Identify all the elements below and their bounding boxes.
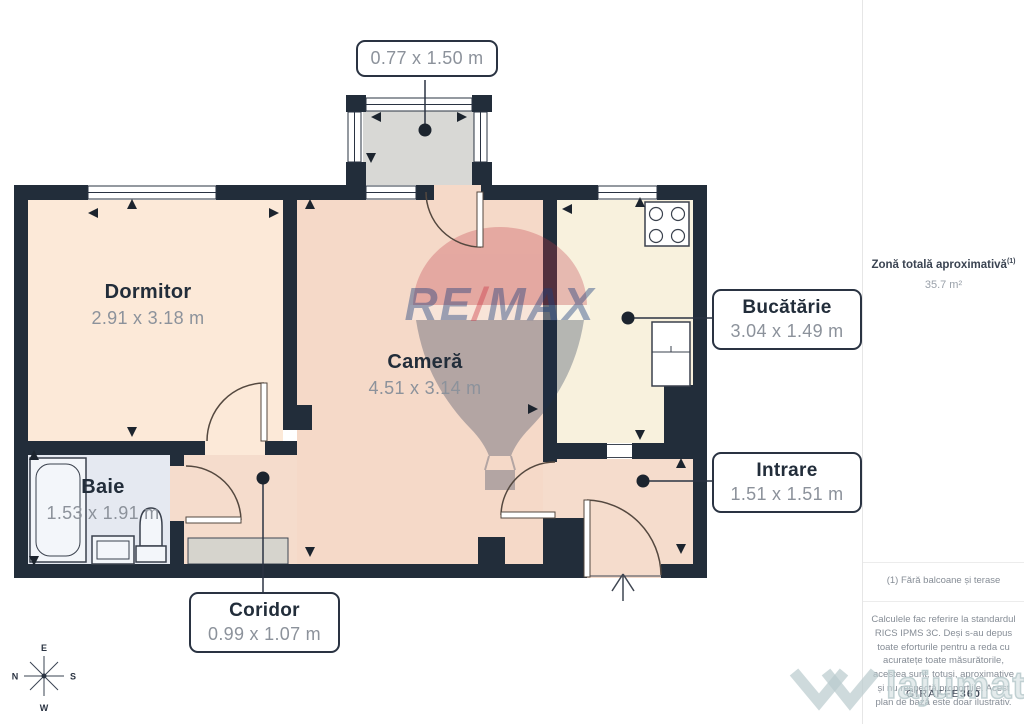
stove-icon — [645, 202, 689, 246]
bucatarie-name: Bucătărie — [718, 297, 856, 319]
remax-text-watermark: RE/MAX — [405, 278, 596, 330]
bucatarie-label-box: Bucătărie 3.04 x 1.49 m — [712, 289, 862, 350]
bucatarie-dims: 3.04 x 1.49 m — [718, 321, 856, 342]
sidebar-divider-2 — [863, 601, 1024, 602]
total-area-title: Zonă totală aproximativă(1) — [863, 258, 1024, 271]
compass-rose: E N S W — [8, 642, 80, 714]
giraffe360-brand-suffix: 360 — [960, 688, 981, 700]
coridor-closet — [188, 538, 288, 564]
coridor-name: Coridor — [195, 600, 334, 622]
total-area-note-ref: (1) — [1007, 258, 1016, 265]
entrance-arrow-icon — [612, 574, 634, 601]
compass-bottom: W — [40, 703, 49, 713]
coridor-dims: 0.99 x 1.07 m — [195, 624, 334, 645]
compass-left: N — [12, 672, 19, 682]
toilet-icon — [136, 508, 166, 562]
sidebar-footnote: (1) Fără balcoane și terase — [863, 575, 1024, 586]
total-area-block: Zonă totală aproximativă(1) 35.7 m² — [863, 258, 1024, 291]
info-sidebar: Zonă totală aproximativă(1) 35.7 m² (1) … — [862, 0, 1024, 724]
bathtub-icon — [30, 458, 86, 562]
remax-re: RE — [405, 278, 473, 330]
compass-center-dot — [42, 674, 47, 679]
giraffe360-brand: GIRAFFE360 — [863, 688, 1024, 700]
balcon-label-box: 0.77 x 1.50 m — [356, 40, 498, 77]
sink-icon — [92, 536, 134, 564]
compass-right: S — [70, 672, 76, 682]
remax-max: MAX — [487, 278, 596, 330]
balcon-floor — [363, 111, 475, 185]
total-area-value: 35.7 m² — [863, 279, 1024, 291]
intrare-label-box: Intrare 1.51 x 1.51 m — [712, 452, 862, 513]
dormitor-floor — [28, 200, 283, 441]
balcon-dims: 0.77 x 1.50 m — [362, 48, 492, 69]
total-area-label: Zonă totală aproximativă — [871, 259, 1006, 271]
giraffe360-brand-name: GIRAFFE — [906, 688, 960, 700]
compass-top: E — [41, 643, 47, 653]
coridor-label-box: Coridor 0.99 x 1.07 m — [189, 592, 340, 653]
intrare-dims: 1.51 x 1.51 m — [718, 484, 856, 505]
intrare-name: Intrare — [718, 460, 856, 482]
floorplan-page: RE/MAX — [0, 0, 1024, 724]
sidebar-divider-1 — [863, 562, 1024, 563]
counter-icon — [652, 322, 690, 386]
